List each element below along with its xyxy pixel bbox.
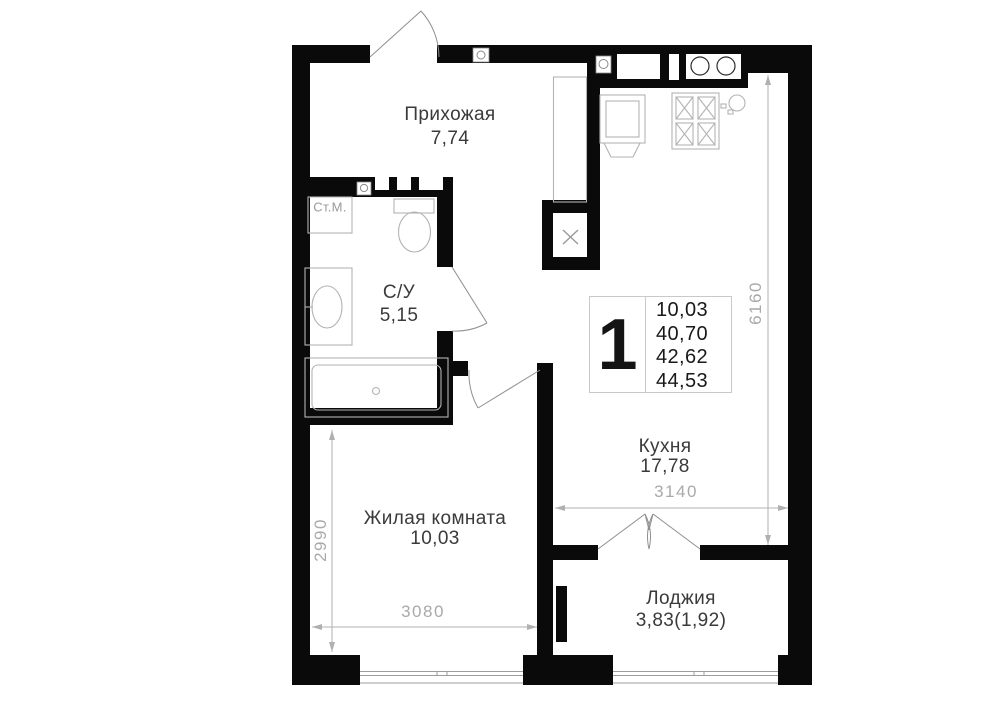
apartment-info-badge: 1 10,03 40,70 42,62 44,53	[589, 296, 732, 393]
loggia-double-door	[598, 514, 700, 549]
bathroom-area-label: 5,15	[380, 305, 419, 327]
wall-notch	[397, 177, 411, 190]
bathroom-door	[452, 267, 487, 331]
wall-bathroom-right-upper	[437, 177, 453, 267]
loggia-area-label: 3,83(1,92)	[636, 610, 727, 632]
wall-top-hallway-right	[437, 45, 590, 63]
living-room-name-label: Жилая комната	[364, 508, 506, 530]
stove	[672, 93, 719, 149]
wall-living-kitchen	[537, 363, 553, 657]
wall-loggia-partition-right	[700, 545, 788, 560]
wall-notch	[375, 177, 389, 190]
area-value-row: 42,62	[656, 346, 731, 370]
riser-box-hallway	[473, 48, 489, 62]
apartment-number: 1	[590, 297, 646, 392]
dim-line-3080	[312, 624, 537, 630]
apartment-areas: 10,03 40,70 42,62 44,53	[646, 297, 731, 392]
kitchen-name-label: Кухня	[639, 436, 692, 458]
wall-bottom-right-pier	[778, 655, 812, 685]
kitchen-counter-appliance	[617, 54, 660, 79]
area-value-row: 40,70	[656, 323, 731, 347]
washing-machine-label: Ст.М.	[313, 200, 346, 215]
area-value-row: 44,53	[656, 370, 731, 394]
wall-living-door-stub	[453, 361, 468, 376]
kitchen-counter-items	[721, 95, 745, 114]
kitchen-area-label: 17,78	[640, 456, 690, 478]
dim-text-3140: 3140	[654, 482, 698, 502]
wall-loggia-partition-left	[553, 545, 598, 560]
wall-bottom-left-pier	[292, 655, 360, 685]
vent-icon	[563, 230, 578, 244]
wall-left	[292, 45, 310, 685]
wall-top-kitchen-right	[748, 45, 790, 73]
hallway-wardrobe	[554, 77, 587, 202]
wall-bottom-middle-pier	[523, 655, 613, 685]
entrance-door	[370, 11, 439, 57]
dim-text-3080: 3080	[401, 602, 445, 622]
dim-text-6160: 6160	[746, 281, 766, 325]
dim-text-2990: 2990	[311, 518, 331, 562]
loggia-window	[613, 672, 778, 684]
wall-top-hallway-left	[292, 45, 370, 63]
vent-shaft-wall-bottom	[542, 257, 600, 270]
floor-plan-canvas: Прихожая 7,74 С/У 5,15 Кухня 17,78 Жилая…	[0, 0, 1000, 707]
living-room-door	[469, 370, 540, 408]
hallway-name-label: Прихожая	[404, 104, 495, 126]
riser-box-kitchen	[596, 56, 611, 73]
wall-right	[788, 45, 812, 685]
wall-notch	[419, 177, 443, 190]
kitchen-tv-unit	[600, 95, 645, 157]
hallway-area-label: 7,74	[431, 128, 470, 150]
wall-hallway-kitchen	[587, 45, 600, 270]
toilet	[394, 199, 434, 252]
loggia-name-label: Лоджия	[646, 588, 716, 610]
bathroom-name-label: С/У	[383, 282, 415, 304]
kitchen-counter-gap	[669, 54, 679, 80]
living-room-area-label: 10,03	[410, 528, 460, 550]
living-room-window	[360, 672, 523, 684]
dim-line-3140	[555, 505, 788, 511]
wall-loggia-stub	[556, 586, 567, 642]
bathroom-sink	[305, 268, 352, 345]
floor-plan-drawing	[0, 0, 1000, 707]
area-value-row: 10,03	[656, 299, 731, 323]
kitchen-sink-unit	[686, 54, 741, 79]
